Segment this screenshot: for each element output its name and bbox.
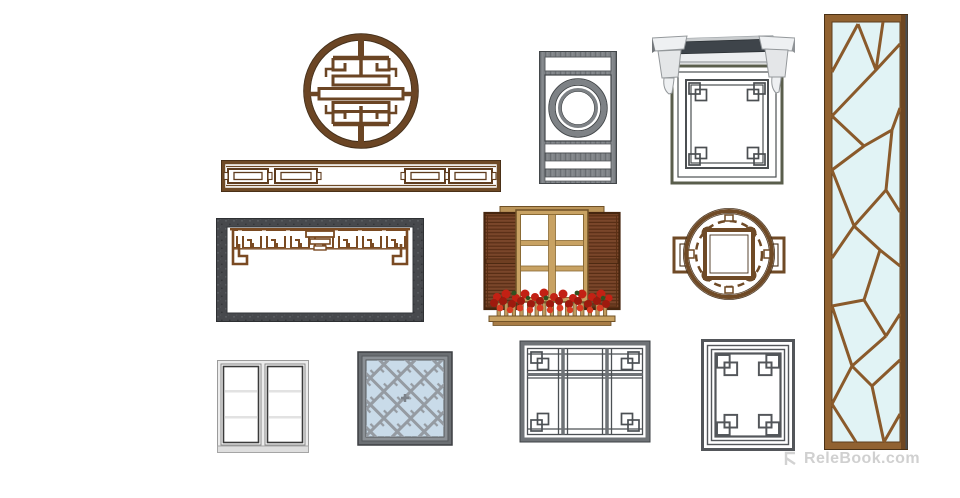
shuttered-flower-window	[483, 206, 621, 326]
cornice-window	[652, 30, 795, 186]
stone-frame-graphic	[216, 218, 424, 322]
stone-frame-with-valance	[216, 218, 424, 322]
shuttered-flower-window-graphic	[483, 206, 621, 326]
flowerbox-sill	[489, 316, 615, 322]
vertical-circle-window-graphic	[539, 51, 617, 184]
right-sash	[265, 364, 305, 445]
corner-knot-frame	[701, 339, 795, 451]
square-fret-window-graphic	[357, 351, 453, 446]
cornice-window-graphic	[652, 30, 795, 186]
left-sash	[221, 364, 261, 445]
round-ear-window-graphic	[672, 205, 786, 303]
lattice-transom-band-graphic	[221, 160, 501, 192]
lattice-transom-band	[221, 160, 501, 192]
watermark-text: ReleBook.com	[804, 450, 920, 468]
round-ear-window	[672, 205, 786, 303]
ice-crack-screen-graphic	[824, 14, 908, 450]
square-fret-window	[357, 351, 453, 446]
watermark: ReleBook.com	[779, 449, 920, 469]
model-collage: ReleBook.com	[0, 0, 960, 498]
round-shou-window-graphic	[302, 30, 420, 152]
white-casement-window-graphic	[217, 360, 309, 453]
ice-crack-screen	[824, 14, 908, 450]
relebook-logo-icon	[779, 449, 799, 469]
white-casement-window	[217, 360, 309, 453]
vertical-circle-window	[539, 51, 617, 184]
gray-mullion-window-graphic	[519, 340, 651, 443]
gray-mullion-window	[519, 340, 651, 443]
round-shou-window	[302, 30, 420, 152]
corner-knot-frame-graphic	[701, 339, 795, 451]
